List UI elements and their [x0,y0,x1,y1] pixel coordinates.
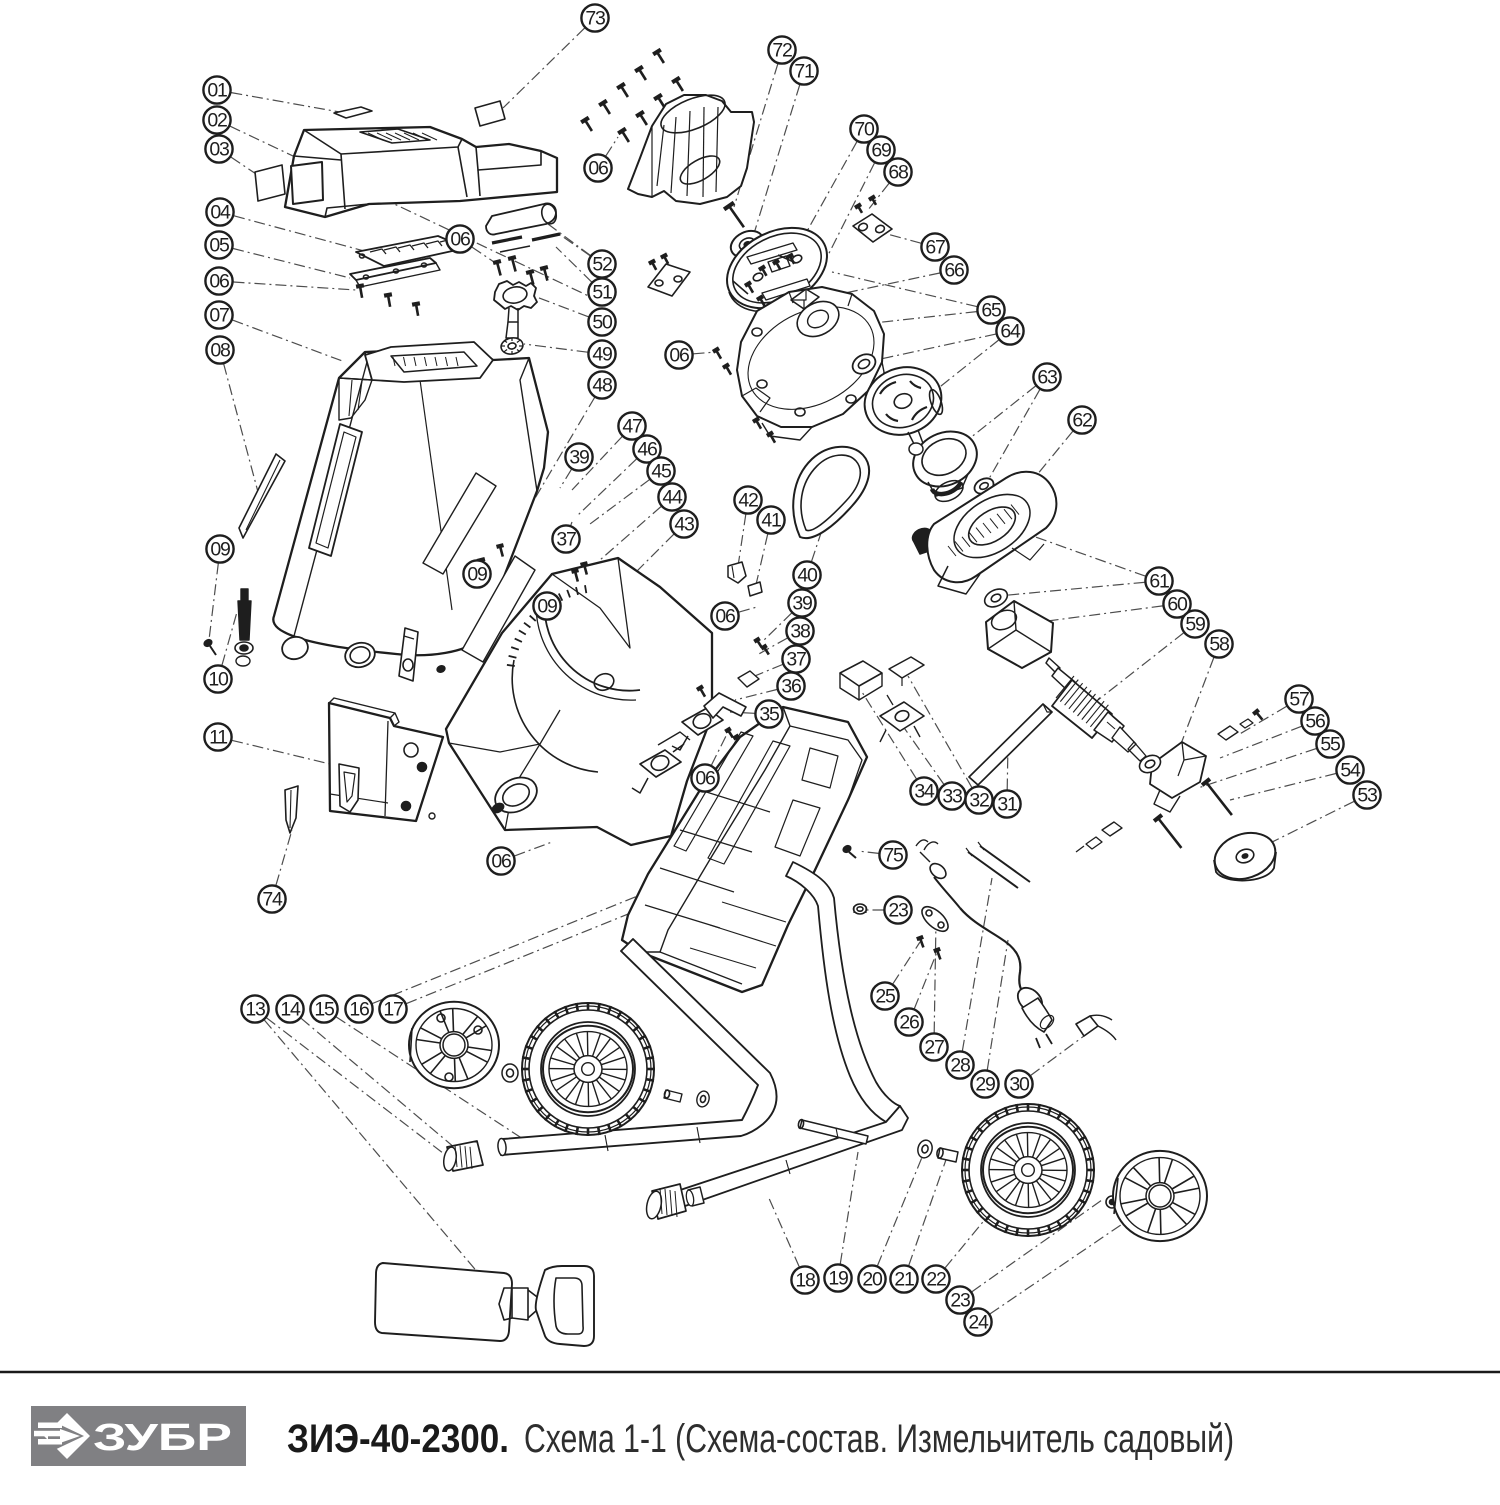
svg-text:67: 67 [925,237,945,259]
svg-text:24: 24 [968,1312,989,1334]
svg-text:73: 73 [585,8,605,30]
svg-text:09: 09 [537,596,557,618]
svg-text:37: 37 [786,649,806,671]
svg-text:17: 17 [383,999,403,1021]
svg-text:23: 23 [888,900,908,922]
svg-text:06: 06 [209,271,229,293]
svg-text:16: 16 [349,999,369,1021]
svg-text:14: 14 [280,999,301,1021]
svg-text:46: 46 [637,439,657,461]
svg-text:06: 06 [669,345,689,367]
svg-text:28: 28 [950,1055,970,1077]
svg-text:48: 48 [592,375,612,397]
svg-text:10: 10 [208,669,229,691]
svg-text:44: 44 [662,487,683,509]
svg-text:47: 47 [622,416,642,438]
svg-text:61: 61 [1149,571,1169,593]
svg-text:ЗИЭ-40-2300.: ЗИЭ-40-2300. [287,1417,509,1461]
svg-text:41: 41 [761,510,781,532]
svg-text:38: 38 [790,621,810,643]
svg-text:21: 21 [894,1269,914,1291]
svg-text:06: 06 [450,229,470,251]
svg-text:32: 32 [969,790,989,812]
svg-text:65: 65 [981,300,1002,322]
svg-text:37: 37 [556,529,576,551]
svg-text:02: 02 [207,110,227,132]
svg-text:09: 09 [210,539,230,561]
svg-text:51: 51 [592,282,612,304]
svg-text:30: 30 [1009,1074,1030,1096]
svg-text:68: 68 [888,162,908,184]
svg-text:62: 62 [1072,410,1092,432]
svg-text:03: 03 [209,139,229,161]
svg-text:31: 31 [997,794,1017,816]
svg-text:06: 06 [715,606,735,628]
svg-text:35: 35 [759,704,780,726]
svg-text:33: 33 [942,786,962,808]
svg-text:06: 06 [695,768,715,790]
svg-text:Схема 1-1 (Схема-состав. Измел: Схема 1-1 (Схема-состав. Измельчитель са… [524,1417,1234,1461]
svg-text:70: 70 [854,119,875,141]
svg-text:55: 55 [1320,734,1341,756]
svg-text:23: 23 [950,1290,970,1312]
svg-text:40: 40 [797,565,818,587]
svg-text:59: 59 [1185,614,1205,636]
svg-text:22: 22 [926,1269,946,1291]
svg-text:07: 07 [209,305,229,327]
svg-text:58: 58 [1209,634,1229,656]
svg-text:42: 42 [738,490,758,512]
svg-text:20: 20 [862,1269,883,1291]
svg-text:43: 43 [674,514,694,536]
svg-text:04: 04 [210,202,231,224]
svg-text:36: 36 [781,676,801,698]
svg-text:49: 49 [592,344,612,366]
svg-text:26: 26 [899,1012,919,1034]
svg-text:50: 50 [592,312,613,334]
svg-text:34: 34 [914,781,935,803]
svg-text:15: 15 [314,999,335,1021]
svg-text:52: 52 [592,254,612,276]
svg-text:69: 69 [871,140,891,162]
svg-text:45: 45 [651,461,672,483]
svg-text:27: 27 [924,1037,944,1059]
svg-text:66: 66 [944,260,964,282]
svg-text:71: 71 [794,61,814,83]
svg-text:11: 11 [209,727,227,749]
svg-text:08: 08 [210,340,230,362]
svg-text:64: 64 [1000,321,1021,343]
svg-text:29: 29 [975,1074,995,1096]
svg-text:74: 74 [262,889,283,911]
svg-text:05: 05 [209,235,230,257]
svg-text:39: 39 [792,593,812,615]
svg-text:25: 25 [875,986,896,1008]
svg-text:06: 06 [491,851,511,873]
svg-text:63: 63 [1037,367,1057,389]
svg-text:57: 57 [1289,689,1309,711]
svg-text:13: 13 [245,999,265,1021]
svg-text:72: 72 [772,40,792,62]
svg-text:53: 53 [1357,785,1377,807]
svg-text:39: 39 [569,447,589,469]
svg-text:75: 75 [883,845,904,867]
svg-text:18: 18 [795,1270,815,1292]
svg-text:56: 56 [1305,711,1325,733]
svg-text:60: 60 [1167,594,1188,616]
svg-text:06: 06 [588,158,608,180]
svg-text:19: 19 [828,1268,848,1290]
svg-text:01: 01 [207,80,227,102]
svg-text:54: 54 [1340,760,1361,782]
svg-text:09: 09 [467,564,487,586]
svg-text:ЗУБР: ЗУБР [93,1417,232,1459]
